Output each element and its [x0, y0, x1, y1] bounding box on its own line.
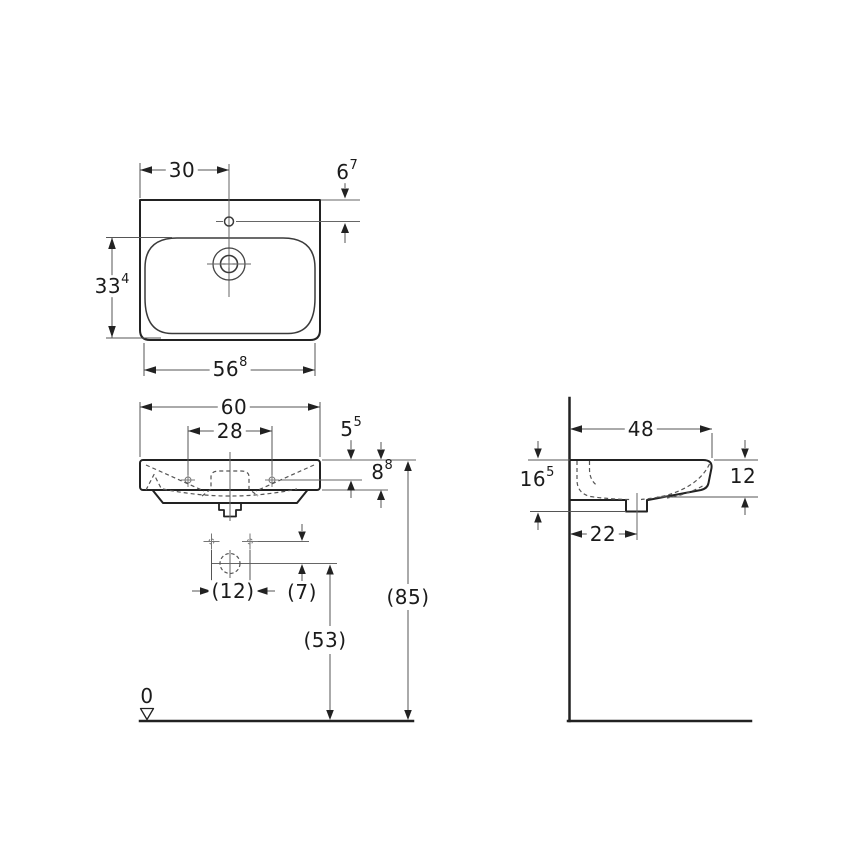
dim-fixing-hole-gap-label: 28	[214, 420, 246, 442]
washbasin-drawing	[0, 0, 868, 868]
arrow-up-icon	[298, 564, 306, 574]
arrow-left-icon	[140, 166, 152, 174]
fixing-hole-mark-right	[242, 534, 258, 550]
front-view	[140, 402, 416, 721]
dim-tap-from-back-label: 67	[333, 161, 361, 183]
dim-total-width-label: 60	[218, 396, 250, 418]
side-view	[528, 398, 758, 721]
arrow-down-icon	[108, 326, 116, 338]
fixing-hole-left	[181, 473, 195, 487]
side-view-profile	[570, 460, 712, 512]
dim-hole-to-drain-label: (7)	[284, 581, 320, 603]
arrow-left-icon	[188, 427, 200, 435]
arrow-up-icon	[347, 481, 355, 491]
top-view-bowl	[145, 238, 315, 334]
fixing-hole-right	[265, 473, 279, 487]
arrow-right-icon	[625, 530, 637, 538]
arrow-down-icon	[298, 532, 306, 542]
arrow-right-icon	[700, 425, 712, 433]
dim-total-depth-label: 48	[625, 418, 657, 440]
dim-ceramic-height-label: 165	[517, 468, 558, 490]
dim-drain-offset-label: (12)	[208, 580, 257, 602]
arrow-right-icon	[217, 166, 229, 174]
top-view	[106, 163, 360, 376]
arrow-right-icon	[308, 403, 320, 411]
dim-drain-from-wall-label: 22	[587, 523, 619, 545]
arrow-down-icon	[341, 189, 349, 199]
side-view-hidden-edges	[577, 461, 710, 500]
arrow-up-icon	[404, 461, 412, 471]
dim-tap-from-left-label: 30	[166, 159, 198, 181]
dim-rim-from-floor-label: (85)	[383, 586, 432, 608]
arrow-down-icon	[741, 449, 749, 459]
arrow-left-icon	[570, 425, 582, 433]
arrow-up-icon	[326, 565, 334, 575]
datum-zero-icon	[141, 709, 154, 720]
dim-front-edge-height-label: 12	[727, 465, 759, 487]
dim-front-width-label: 568	[210, 358, 251, 380]
arrow-down-icon	[326, 710, 334, 720]
dim-rim-height-label: 88	[368, 461, 396, 483]
arrow-up-icon	[377, 490, 385, 500]
arrow-left-icon	[570, 530, 582, 538]
dim-rim-to-hole-label: 55	[337, 418, 365, 440]
arrow-up-icon	[108, 238, 116, 250]
arrow-up-icon	[741, 498, 749, 508]
arrow-down-icon	[534, 449, 542, 459]
arrow-up-icon	[534, 513, 542, 523]
dim-bowl-depth-label: 334	[92, 275, 133, 297]
arrow-left-icon	[140, 403, 152, 411]
arrow-left-icon	[256, 587, 268, 595]
arrow-left-icon	[144, 366, 156, 374]
arrow-down-icon	[404, 710, 412, 720]
dim-drain-from-floor-label: (53)	[300, 629, 349, 651]
floor-datum-label: 0	[137, 685, 156, 707]
fixing-hole-mark-left	[204, 534, 220, 550]
arrow-down-icon	[347, 450, 355, 460]
arrow-right-icon	[260, 427, 272, 435]
technical-drawing-page: 30 67 334 568 60 28 55 88 (12) (7) (53) …	[0, 0, 868, 868]
arrow-right-icon	[303, 366, 315, 374]
arrow-up-icon	[341, 223, 349, 233]
